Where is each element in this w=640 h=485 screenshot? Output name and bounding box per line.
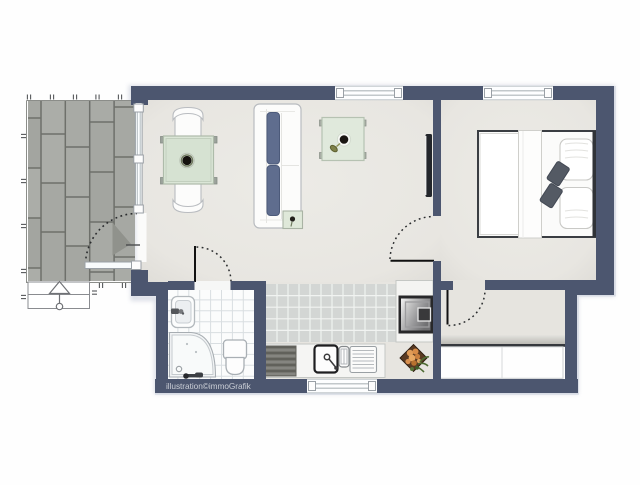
svg-text:illustration©immoGrafik: illustration©immoGrafik (166, 381, 252, 391)
